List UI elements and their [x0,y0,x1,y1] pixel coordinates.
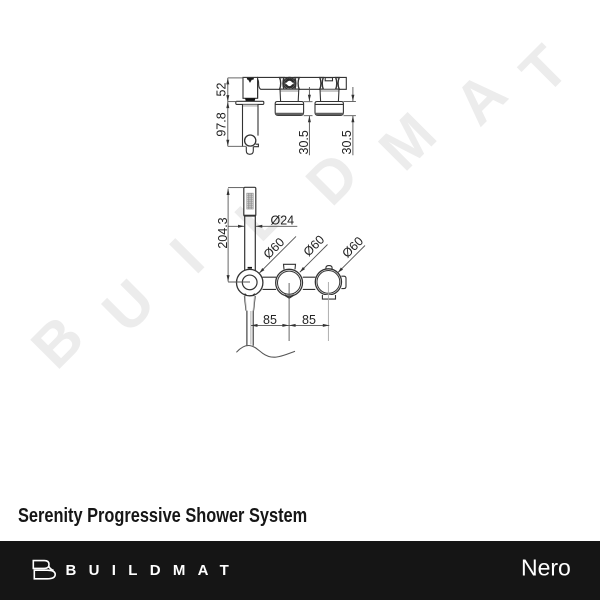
svg-text:97.8: 97.8 [214,112,228,136]
svg-text:BUILDMAT: BUILDMAT [66,562,242,579]
svg-text:Ø60: Ø60 [301,232,328,259]
svg-text:52: 52 [214,83,228,97]
svg-text:30.5: 30.5 [297,130,311,154]
svg-text:Ø60: Ø60 [340,234,367,261]
svg-text:85: 85 [263,313,277,327]
svg-text:204.3: 204.3 [216,217,230,248]
svg-text:Ø60: Ø60 [261,235,288,262]
svg-text:30.5: 30.5 [340,130,354,154]
svg-text:Nero: Nero [521,554,571,580]
svg-text:Ø24: Ø24 [271,214,295,228]
svg-text:85: 85 [302,313,316,327]
